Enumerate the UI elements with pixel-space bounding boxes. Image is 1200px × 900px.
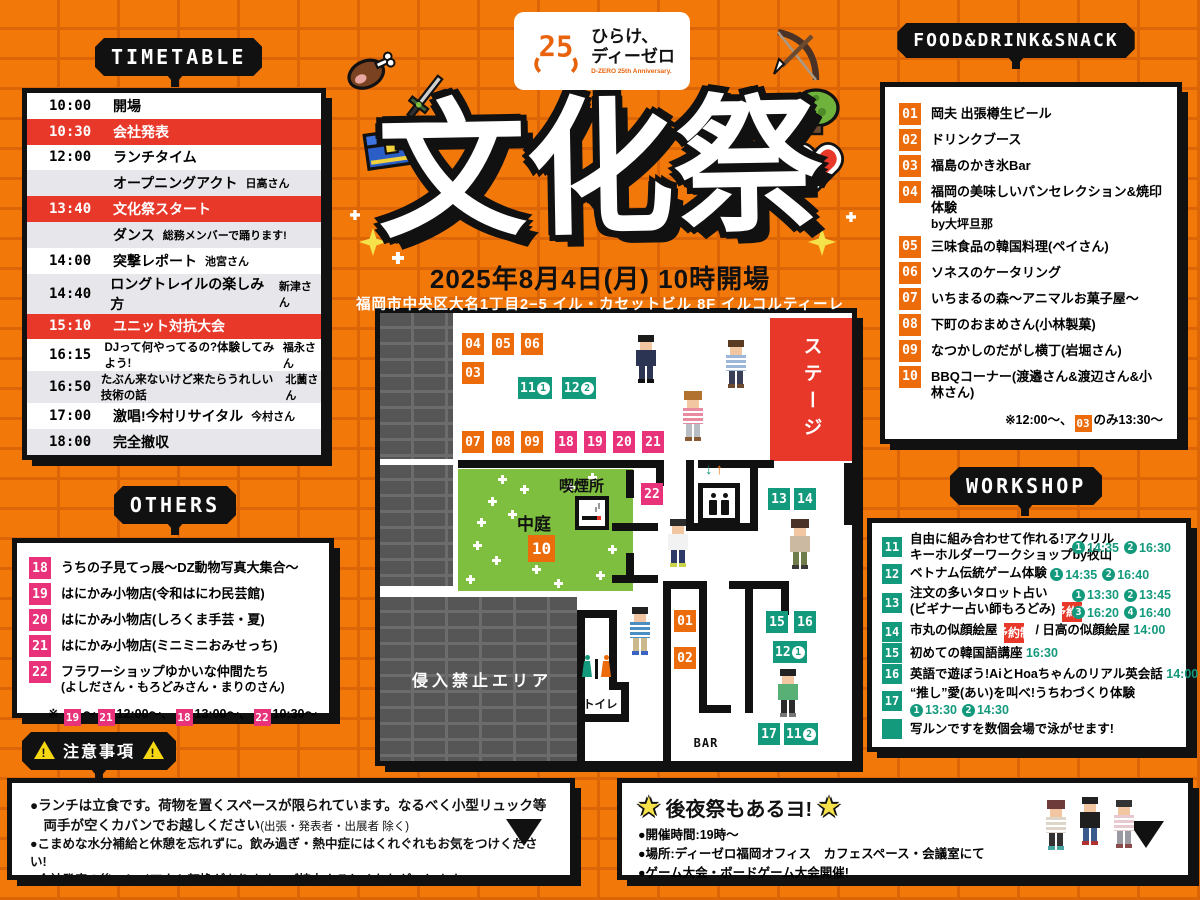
list-item: 05三味食品の韓国料理(ペイさん)	[899, 236, 1163, 258]
item-label-line: うちの子見てっ展〜DZ動物写真大集合〜	[61, 560, 299, 576]
slot-number: 1	[537, 382, 550, 395]
bow-arrow-icon	[760, 22, 830, 92]
slot-time: 16:30	[1139, 540, 1171, 556]
item-label-line: 三味食品の韓国料理(ペイさん)	[931, 239, 1109, 255]
bubble-tail	[166, 74, 184, 87]
slot-number: 2	[581, 382, 594, 395]
interior-wall	[577, 714, 629, 722]
person-part	[1116, 800, 1132, 807]
interior-wall	[844, 463, 852, 525]
item-label-line: 下町のおまめさん(小林製菓)	[931, 317, 1096, 333]
pixel-person	[778, 669, 798, 717]
person-part	[1047, 800, 1065, 809]
badge-number: 03	[465, 366, 481, 381]
person-part	[686, 424, 700, 437]
meat-icon	[342, 38, 400, 98]
timetable-label: DJって何やってるの?体験してみよう!	[104, 339, 274, 371]
courtyard-label: 中庭	[517, 510, 551, 535]
down-arrow-icon: ↓	[705, 461, 713, 478]
interior-wall	[663, 581, 671, 761]
pixel-person	[1046, 800, 1066, 850]
slot-number: 2	[1102, 568, 1115, 581]
flower-icon	[492, 556, 501, 565]
map-booth-badge: 08	[492, 431, 514, 453]
person-part	[632, 607, 648, 614]
badge-number: 19	[587, 435, 603, 450]
badge-number: 21	[645, 435, 661, 450]
item-number-badge: 15	[882, 643, 902, 663]
map-booth-badge: 121	[773, 641, 807, 663]
workshop-item: 17“推し”愛(あい)を叫べ!うちわづくり体験113:30214:30	[882, 685, 1176, 719]
text: 注文の多いタロット占い	[910, 586, 1048, 600]
item-label: はにかみ小物店(令和はにわ民芸館)	[61, 583, 265, 602]
text: / 日高の似顔絵屋	[1032, 623, 1133, 637]
person-part	[1114, 815, 1134, 831]
afterparty-line: ●ゲーム大会・ボードゲーム大会開催!	[638, 864, 1172, 883]
workshop-item-text: 英語で遊ぼう!AiとHoaちゃんのリアル英会話 14:00	[910, 666, 1176, 682]
text: ベトナム伝統ゲーム体験	[910, 566, 1050, 580]
slot-number: 3	[1072, 606, 1085, 619]
person-part	[730, 347, 742, 355]
item-label-line: はにかみ小物店(しろくま手芸・夏)	[61, 612, 265, 628]
pixel-person	[636, 335, 656, 383]
bubble-tail	[90, 768, 108, 781]
text: (ビギナー占い師もろどみ)	[910, 602, 1059, 616]
slot-number: 4	[1124, 606, 1137, 619]
flower-icon	[608, 545, 617, 554]
subtext: (出張・発表者・出展者 除く)	[260, 821, 409, 833]
item-label: うちの子見てっ展〜DZ動物写真大集合〜	[61, 557, 299, 576]
person-part	[670, 519, 686, 526]
person-part	[1080, 812, 1100, 828]
inline-number-badge: 21	[98, 709, 115, 726]
pixel-person	[1114, 800, 1134, 848]
item-number-badge: 16	[882, 664, 902, 684]
time-slot: 213:45	[1124, 587, 1171, 603]
workshop-item-text: 自由に組み合わせて作れる!アクリルキーホルダーワークショップby牧山	[910, 531, 1068, 564]
pixel-person	[683, 391, 703, 441]
flower-icon	[508, 510, 517, 519]
warning-icon	[143, 741, 164, 759]
person-part	[639, 366, 653, 379]
slot-time: 13:30	[1087, 587, 1119, 603]
slot-number: 2	[803, 728, 816, 741]
map-booth-badge: 15	[766, 611, 788, 633]
inline-number-badge: 18	[176, 709, 193, 726]
dzero-logo: 25 ひらけ、 ディーゼロ D-ZERO 25th Anniversary.	[514, 12, 690, 90]
workshop-line: (ビギナー占い師もろどみ) 予約制	[910, 601, 1068, 622]
person-part	[729, 371, 743, 384]
others-header: OTHERS	[95, 486, 255, 535]
person-part	[671, 550, 685, 563]
person-part	[683, 408, 703, 424]
interior-wall	[612, 575, 658, 583]
flower-icon	[532, 565, 541, 574]
time-slot: 114:35	[1072, 540, 1119, 556]
text: 12:00〜、	[117, 707, 174, 721]
badge-number: 02	[677, 651, 693, 666]
smoking-label: 喫煙所	[559, 475, 604, 496]
bubble-tail	[1007, 56, 1025, 69]
item-label: 下町のおまめさん(小林製菓)	[931, 314, 1096, 333]
notice-line: ●こまめな水分補給と休憩を忘れずに。飲み過ぎ・熱中症にはくれぐれもお気をつけくだ…	[30, 835, 552, 871]
list-item: 19はにかみ小物店(令和はにわ民芸館)	[29, 583, 317, 605]
timetable-time: 18:00	[49, 434, 113, 450]
item-label: BBQコーナー(渡邉さん&渡辺さん&小林さん)	[931, 366, 1163, 402]
item-label: なつかしのだがし横丁(岩堀さん)	[931, 340, 1122, 359]
map-booth-badge: 03	[462, 362, 484, 384]
workshop-item: 12ベトナム伝統ゲーム体験 114:35216:40	[882, 564, 1176, 584]
workshop-item: 写ルンですを数個会場で泳がせます!	[882, 719, 1176, 739]
map-booth-badge: 05	[492, 333, 514, 355]
text: ●会社発表の後、レイアウト転換があります。ご協力よろしくおねがいします。	[30, 873, 473, 887]
item-label-line2: (よしださん・もろどみさん・まりのさん)	[61, 680, 285, 695]
timetable-label: ユニット対抗大会	[113, 316, 225, 336]
workshop-line: 初めての韓国語講座 16:30	[910, 645, 1176, 661]
badge-number: 16	[797, 615, 813, 630]
slot-time: 14:35	[1087, 540, 1119, 556]
text: のみ13:30〜	[1094, 413, 1163, 427]
person-part	[1082, 841, 1098, 845]
pixel-person	[1080, 797, 1100, 845]
workshop-item-text: “推し”愛(あい)を叫べ!うちわづくり体験113:30214:30	[910, 685, 1176, 719]
workshop-item: 15初めての韓国語講座 16:30	[882, 643, 1176, 663]
badge-number: 09	[524, 435, 540, 450]
map-booth-badge: 19	[584, 431, 606, 453]
badge-number: 18	[558, 435, 574, 450]
slot-number: 1	[1050, 568, 1063, 581]
slot-number: 1	[792, 646, 805, 659]
workshop-line: 注文の多いタロット占い	[910, 585, 1068, 601]
afterparty-lines: ●開催時間:19時〜●場所:ディーゼロ福岡オフィス カフェスペース・会議室にて●…	[622, 824, 1188, 884]
workshop-panel: 11自由に組み合わせて作れる!アクリルキーホルダーワークショップby牧山114:…	[867, 518, 1191, 752]
workshop-item: 16英語で遊ぼう!AiとHoaちゃんのリアル英会話 14:00	[882, 664, 1176, 684]
slot-number: 2	[962, 704, 975, 717]
workshop-time-line: 316:20416:40	[1072, 603, 1176, 621]
interior-wall	[612, 523, 658, 531]
timetable-row: 16:50たぶん来ないけど来たらうれしい技術の話北薗さん	[27, 371, 321, 403]
wall-block	[380, 465, 453, 586]
slot-number: 2	[1124, 589, 1137, 602]
person-part	[782, 676, 794, 684]
interior-wall	[577, 610, 585, 761]
text: 両手が空くカバンでお越しください	[30, 818, 260, 833]
item-number-badge: 13	[882, 593, 902, 613]
text: 写ルンですを数個会場で泳がせます!	[910, 722, 1114, 736]
time-slot: 113:30	[1072, 587, 1119, 603]
person-part	[630, 622, 650, 638]
interior-wall	[699, 589, 707, 713]
item-number-badge: 14	[882, 622, 902, 642]
badge-number: 15	[769, 615, 785, 630]
notice-line: ●会社発表の後、レイアウト転換があります。ご協力よろしくおねがいします。	[30, 871, 552, 889]
logo-line1: ひらけ、	[591, 27, 675, 47]
workshop-item-text: 市丸の似顔絵屋 予約制 / 日高の似顔絵屋 14:00	[910, 622, 1176, 643]
badge-number: 06	[524, 337, 540, 352]
person-part	[726, 355, 746, 371]
workshop-header: WORKSHOP	[950, 467, 1100, 516]
slot-number: 1	[1072, 589, 1085, 602]
badge-number: 08	[495, 435, 511, 450]
text: 英語で遊ぼう!AiとHoaちゃんのリアル英会話	[910, 667, 1166, 681]
restroom-icon	[582, 655, 611, 679]
map-booth-badge: 21	[642, 431, 664, 453]
green-square-icon	[882, 719, 902, 739]
pixel-person	[790, 519, 810, 569]
item-label-line: はにかみ小物店(令和はにわ民芸館)	[61, 586, 265, 602]
item-number-badge: 22	[29, 661, 51, 683]
interior-wall	[686, 523, 758, 531]
list-item: 09なつかしのだがし横丁(岩堀さん)	[899, 340, 1163, 362]
flower-icon	[596, 571, 605, 580]
pixel-person	[630, 607, 650, 655]
item-number-badge: 20	[29, 609, 51, 631]
interior-wall	[699, 705, 731, 713]
time-value: 16:30	[1026, 646, 1058, 660]
list-item: 21はにかみ小物店(ミニミニおみせっち)	[29, 635, 317, 657]
badge-number: 11	[520, 381, 536, 396]
map-booth-badge: 13	[768, 488, 790, 510]
map-booth-badge: 07	[462, 431, 484, 453]
time-slot: 114:35	[1050, 567, 1097, 583]
afterparty-title-row: ★ 後夜祭もあるヨ! ★	[622, 783, 1188, 824]
map-booth-badge: 22	[641, 483, 663, 505]
slot-time: 16:40	[1139, 605, 1171, 621]
person-part	[633, 638, 647, 651]
item-label-line: なつかしのだがし横丁(岩堀さん)	[931, 343, 1122, 359]
workshop-line: 英語で遊ぼう!AiとHoaちゃんのリアル英会話 14:00	[910, 666, 1176, 682]
workshop-item-text: 写ルンですを数個会場で泳がせます!	[910, 721, 1176, 737]
item-label-line: フラワーショップゆかいな仲間たち	[61, 664, 285, 680]
item-number-badge: 21	[29, 635, 51, 657]
dzero-25-logo-icon: 25	[529, 24, 583, 78]
bubble-tail	[1016, 503, 1034, 516]
timetable-label: 完全撤収	[113, 432, 169, 452]
workshop-item-text: ベトナム伝統ゲーム体験 114:35216:40	[910, 565, 1176, 583]
workshop-time-line: 113:30213:45	[1072, 586, 1176, 604]
text: 初めての韓国語講座	[910, 646, 1026, 660]
item-label: 三味食品の韓国料理(ペイさん)	[931, 236, 1109, 255]
badge-number: 22	[644, 487, 660, 502]
map-booth-badge: 09	[521, 431, 543, 453]
bubble-tail	[166, 522, 184, 535]
flower-icon	[488, 497, 497, 506]
person-part	[685, 437, 701, 441]
up-arrow-icon: ↑	[716, 461, 724, 478]
person-part	[780, 713, 796, 717]
person-part	[632, 651, 648, 655]
list-item: 10BBQコーナー(渡邉さん&渡辺さん&小林さん)	[899, 366, 1163, 402]
food-footnote: ※12:00〜、03のみ13:30〜	[899, 409, 1163, 432]
person-part	[1048, 846, 1064, 850]
event-title: 文化祭	[0, 86, 1200, 255]
map-booth-badge: 122	[562, 377, 596, 399]
workshop-times: 113:30213:45316:20416:40	[1072, 586, 1176, 621]
badge-number: 07	[465, 435, 481, 450]
slot-time: 14:30	[977, 702, 1009, 718]
flower-icon	[466, 575, 475, 584]
timetable-note: 今村さん	[251, 408, 295, 424]
timetable-time: 16:15	[49, 347, 104, 363]
flower-icon	[473, 541, 482, 550]
text: 〜	[83, 707, 96, 721]
person-part	[636, 350, 656, 366]
timetable-header: TIMETABLE	[95, 38, 255, 87]
notice-panel: ●ランチは立食です。荷物を置くスペースが限られています。なるべく小型リュック等 …	[7, 778, 575, 880]
item-label: フラワーショップゆかいな仲間たち(よしださん・もろどみさん・まりのさん)	[61, 661, 285, 695]
text: ●こまめな水分補給と休憩を忘れずに。飲み過ぎ・熱中症にはくれぐれもお気をつけくだ…	[30, 837, 538, 869]
timetable-label: 激唱!今村リサイタル	[113, 406, 243, 426]
interior-wall	[729, 581, 789, 589]
badge-number: 17	[761, 727, 777, 742]
time-slot: 216:40	[1102, 567, 1149, 583]
time-slot: 216:30	[1124, 540, 1171, 556]
person-part	[793, 552, 807, 565]
food-header: FOOD&DRINK&SNACK	[885, 23, 1147, 69]
festival-poster: 25 ひらけ、 ディーゼロ D-ZERO 25th Anniversary. 文…	[0, 0, 1200, 900]
timetable-title: TIMETABLE	[95, 38, 262, 76]
slot-time: 16:20	[1087, 605, 1119, 621]
inline-number-badge: 22	[254, 709, 271, 726]
workshop-line: 写ルンですを数個会場で泳がせます!	[910, 721, 1176, 737]
person-part	[1082, 797, 1098, 804]
time-slot: 113:30	[910, 702, 957, 718]
logo-text: ひらけ、 ディーゼロ D-ZERO 25th Anniversary.	[591, 27, 675, 75]
person-part	[781, 700, 795, 713]
timetable-note: 福永さん	[283, 339, 321, 371]
pixel-person	[726, 340, 746, 388]
interior-wall	[626, 553, 634, 577]
slot-number: 1	[910, 704, 923, 717]
venue-map: 侵入禁止エリア ステージ 中庭 喫煙所 ↓↑ トイレ BAR 040506031…	[375, 308, 857, 766]
flower-icon	[554, 579, 563, 588]
map-booth-badge: 16	[794, 611, 816, 633]
person-part	[791, 519, 809, 528]
person-part	[1050, 809, 1062, 817]
person-part	[672, 526, 684, 534]
afterparty-panel: ★ 後夜祭もあるヨ! ★ ●開催時間:19時〜●場所:ディーゼロ福岡オフィス カ…	[617, 778, 1193, 880]
timetable-label: たぶん来ないけど来たらうれしい技術の話	[101, 371, 278, 403]
text: ※12:00〜、	[1005, 413, 1072, 427]
person-part	[638, 379, 654, 383]
item-number-badge: 19	[29, 583, 51, 605]
elevator-arrows: ↓↑	[705, 461, 723, 478]
map-booth-badge: 18	[555, 431, 577, 453]
person-part	[780, 669, 796, 676]
badge-number: 12	[564, 381, 580, 396]
item-label-line: はにかみ小物店(ミニミニおみせっち)	[61, 638, 278, 654]
slot-number: 1	[1072, 541, 1085, 554]
person-part	[687, 400, 699, 408]
person-part	[1084, 804, 1096, 812]
workshop-item-text: 初めての韓国語講座 16:30	[910, 645, 1176, 661]
workshop-line: 自由に組み合わせて作れる!アクリル	[910, 531, 1068, 547]
badge-number: 12	[775, 645, 791, 660]
badge-number: 11	[786, 727, 802, 742]
person-part	[728, 384, 744, 388]
badge-number: 10	[532, 539, 551, 558]
time-slot: 214:30	[962, 702, 1009, 718]
flower-icon	[477, 518, 486, 527]
text: “推し”愛(あい)を叫べ!うちわづくり体験	[910, 686, 1135, 700]
item-number-badge: 08	[899, 314, 921, 336]
workshop-line: 市丸の似顔絵屋 予約制 / 日高の似顔絵屋 14:00	[910, 622, 1176, 643]
person-part	[1046, 817, 1066, 833]
timetable-row: 15:10ユニット対抗大会	[27, 314, 321, 340]
others-title: OTHERS	[114, 486, 236, 524]
person-part	[1083, 828, 1097, 841]
workshop-item: 11自由に組み合わせて作れる!アクリルキーホルダーワークショップby牧山114:…	[882, 531, 1176, 564]
text: ●ランチは立食です。荷物を置くスペースが限られています。なるべく小型リュック等	[30, 798, 546, 813]
badge-number: 04	[465, 337, 481, 352]
person-part	[638, 335, 654, 342]
notice-title: 注意事項	[63, 738, 135, 762]
timetable-time: 17:00	[49, 408, 113, 424]
workshop-times: 114:35216:30	[1072, 538, 1176, 556]
workshop-line: ベトナム伝統ゲーム体験 114:35216:40	[910, 565, 1176, 583]
stage-area: ステージ	[770, 318, 852, 461]
person-part	[792, 565, 808, 569]
others-items: 18うちの子見てっ展〜DZ動物写真大集合〜19はにかみ小物店(令和はにわ民芸館)…	[29, 553, 317, 699]
food-title: FOOD&DRINK&SNACK	[897, 23, 1134, 58]
afterparty-line: ●場所:ディーゼロ福岡オフィス カフェスペース・会議室にて	[638, 845, 1172, 864]
item-number-badge: 17	[882, 691, 902, 711]
timetable-note: 北薗さん	[285, 371, 321, 403]
item-number-badge: 05	[899, 236, 921, 258]
person-part	[668, 534, 688, 550]
badge-number: 14	[797, 492, 813, 507]
list-item: 22フラワーショップゆかいな仲間たち(よしださん・もろどみさん・まりのさん)	[29, 661, 317, 695]
svg-text:25: 25	[539, 29, 574, 63]
notice-header: 注意事項	[14, 732, 184, 781]
bar-label: BAR	[680, 736, 732, 750]
workshop-item: 14市丸の似顔絵屋 予約制 / 日高の似顔絵屋 14:00	[882, 622, 1176, 643]
item-label-line: BBQコーナー(渡邉さん&渡辺さん&小林さん)	[931, 369, 1163, 402]
event-venue: 福岡市中央区大名1丁目2−5 イル・カセットビル 8F イルコルティーレ	[0, 293, 1200, 314]
time-value: 14:00	[1166, 667, 1198, 681]
others-panel: 18うちの子見てっ展〜DZ動物写真大集合〜19はにかみ小物店(令和はにわ民芸館)…	[12, 538, 334, 718]
workshop-line: 113:30214:30	[910, 701, 1176, 719]
badge-number: 20	[616, 435, 632, 450]
workshop-line: キーホルダーワークショップby牧山	[910, 547, 1068, 563]
text: 市丸の似顔絵屋	[910, 623, 1001, 637]
map-booth-badge: 06	[521, 333, 543, 355]
person-part	[1117, 831, 1131, 844]
badge-number: 13	[771, 492, 787, 507]
map-booth-badge: 111	[518, 377, 552, 399]
timetable-row: 17:00激唱!今村リサイタル今村さん	[27, 403, 321, 429]
pixel-person	[668, 519, 688, 567]
workshop-item: 13注文の多いタロット占い(ビギナー占い師もろどみ) 予約制113:30213:…	[882, 585, 1176, 622]
person-part	[670, 563, 686, 567]
workshop-title: WORKSHOP	[950, 467, 1102, 505]
flower-icon	[498, 475, 507, 484]
person-part	[1116, 844, 1132, 848]
person-part	[1049, 833, 1063, 846]
list-item: 20はにかみ小物店(しろくま手芸・夏)	[29, 609, 317, 631]
map-booth-badge: 14	[794, 488, 816, 510]
slot-time: 13:30	[925, 702, 957, 718]
item-label: はにかみ小物店(しろくま手芸・夏)	[61, 609, 265, 628]
timetable-time: 16:50	[49, 379, 101, 395]
item-number-badge: 12	[882, 564, 902, 584]
notice-line: 両手が空くカバンでお越しください(出張・発表者・出展者 除く)	[30, 816, 552, 836]
notice-lines: ●ランチは立食です。荷物を置くスペースが限られています。なるべく小型リュック等 …	[12, 783, 570, 900]
interior-wall	[745, 589, 753, 713]
toilet-label: トイレ	[583, 696, 618, 712]
time-slot: 316:20	[1072, 605, 1119, 621]
map-booth-badge: 10	[528, 535, 555, 562]
